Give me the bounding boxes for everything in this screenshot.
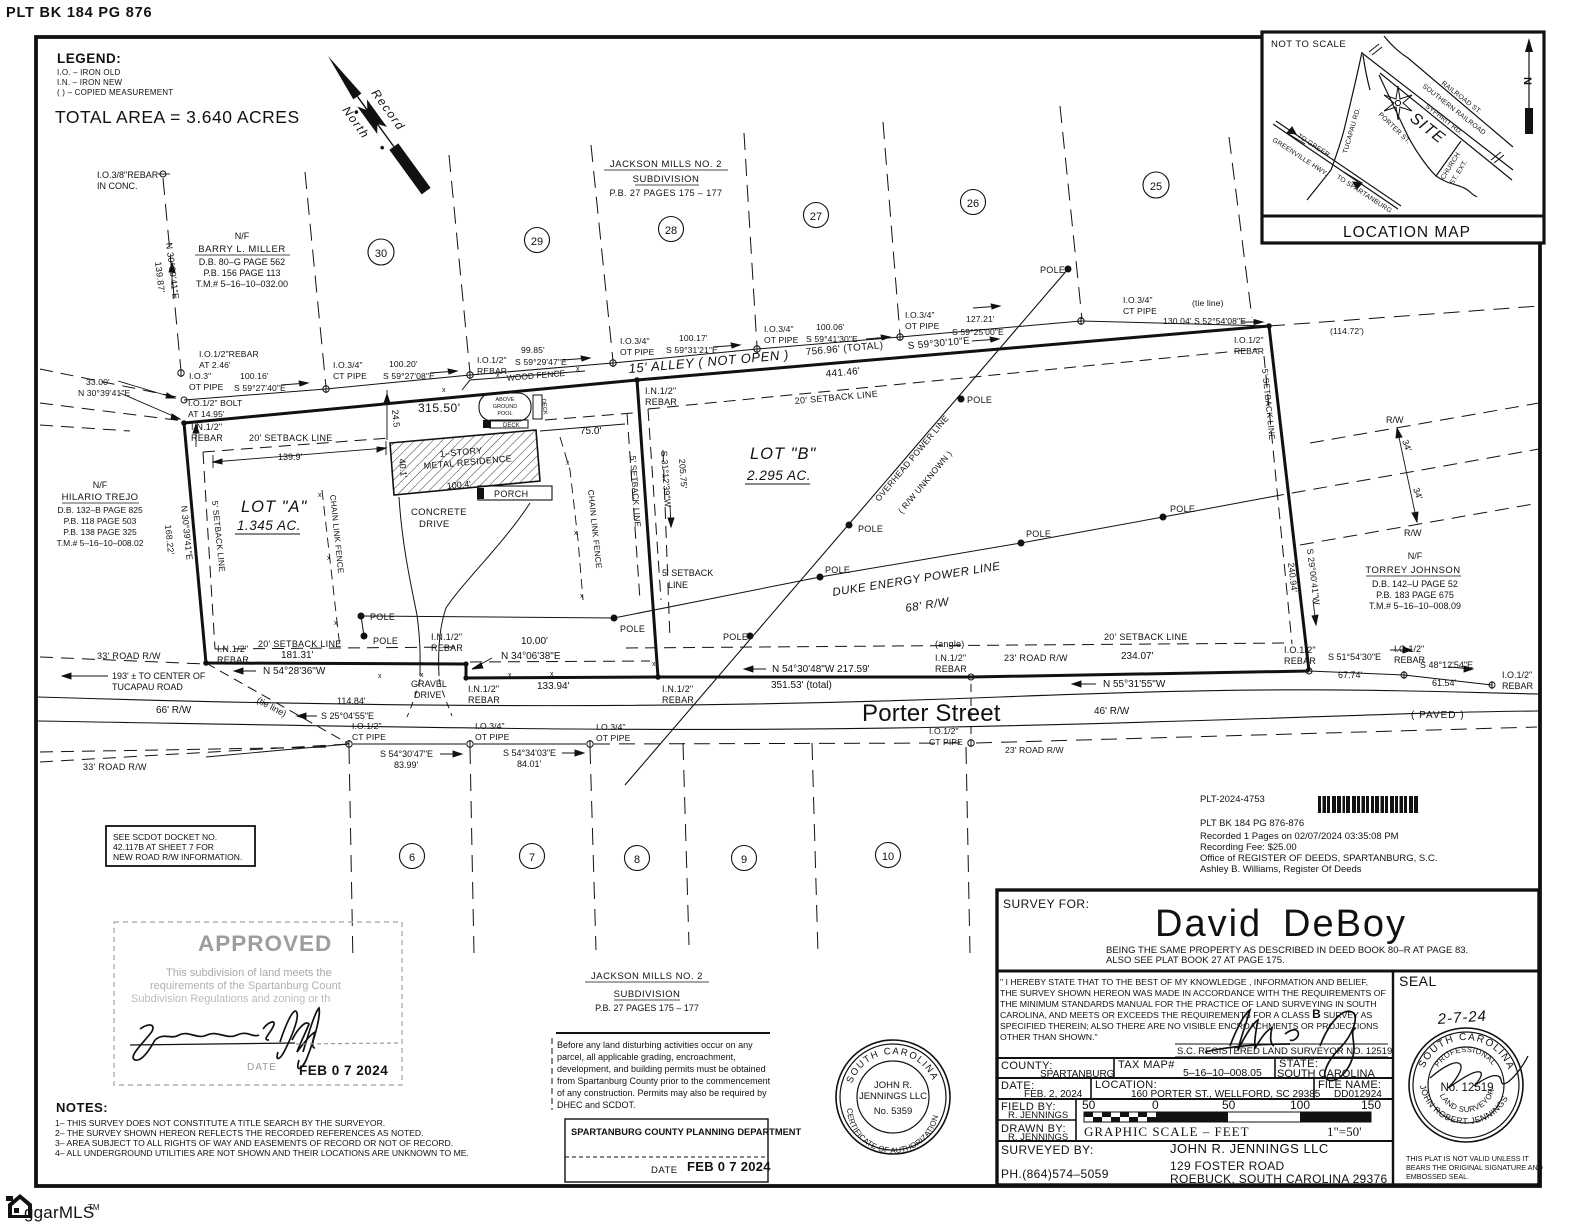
svg-text:7: 7 xyxy=(529,852,535,864)
svg-text:I.O.3/4": I.O.3/4" xyxy=(620,336,650,346)
svg-text:100.4': 100.4' xyxy=(446,479,471,491)
svg-text:TOTAL AREA = 3.640 ACRES: TOTAL AREA = 3.640 ACRES xyxy=(55,107,300,127)
svg-text:REBAR: REBAR xyxy=(477,366,507,376)
svg-text:TORREY JOHNSON: TORREY JOHNSON xyxy=(1365,565,1460,576)
svg-text:(tie line): (tie line) xyxy=(1192,298,1224,308)
svg-text:I.O.1/2": I.O.1/2" xyxy=(929,726,959,736)
svg-text:PORCH: PORCH xyxy=(494,489,529,499)
svg-text:100.06': 100.06' xyxy=(816,322,845,332)
svg-text:OT PIPE: OT PIPE xyxy=(475,732,510,742)
svg-text:REBAR: REBAR xyxy=(431,643,463,653)
svg-text:4– ALL UNDERGROUND UTILITIE: 4– ALL UNDERGROUND UTILITIES ARE NOT SHO… xyxy=(55,1148,469,1158)
svg-text:HILARIO TREJO: HILARIO TREJO xyxy=(62,492,139,503)
svg-text:S 59°27'40"E: S 59°27'40"E xyxy=(234,383,286,393)
svg-text:( ) – COPIED MEASUREMENT: ( ) – COPIED MEASUREMENT xyxy=(57,88,173,97)
svg-text:10: 10 xyxy=(882,851,894,863)
svg-text:351.53' (total): 351.53' (total) xyxy=(771,680,832,691)
svg-text:I.N.1/2": I.N.1/2" xyxy=(645,386,676,396)
svg-text:TAX MAP#: TAX MAP# xyxy=(1118,1059,1175,1071)
svg-text:S 59°27'08"E: S 59°27'08"E xyxy=(383,371,435,381)
svg-text:POLE: POLE xyxy=(1040,265,1065,275)
svg-text:I.O.3/8"REBAR: I.O.3/8"REBAR xyxy=(97,170,159,180)
svg-text:CT PIPE: CT PIPE xyxy=(1123,306,1157,316)
svg-text:(angle): (angle) xyxy=(935,639,964,649)
svg-text:P.B. 27 PAGES 175 – 177: P.B. 27 PAGES 175 – 177 xyxy=(595,1003,699,1013)
svg-text:0: 0 xyxy=(1152,1098,1159,1112)
svg-text:of any construction. Permits m: of any construction. Permits may also be… xyxy=(557,1088,767,1098)
svg-text:P.B. 138 PAGE 325: P.B. 138 PAGE 325 xyxy=(63,527,137,537)
svg-text:I.N.1/2": I.N.1/2" xyxy=(662,684,693,694)
svg-text:100.16': 100.16' xyxy=(240,371,269,381)
svg-text:SEAL: SEAL xyxy=(1399,973,1437,989)
svg-text:I.O.3": I.O.3" xyxy=(189,371,211,381)
svg-text:OT PIPE: OT PIPE xyxy=(620,347,655,357)
svg-text:1"=50': 1"=50' xyxy=(1327,1124,1361,1139)
svg-text:CONCRETE: CONCRETE xyxy=(411,507,467,518)
svg-text:PH.(864)574–5059: PH.(864)574–5059 xyxy=(1001,1167,1109,1181)
svg-text:D.B. 132–B PAGE 825: D.B. 132–B PAGE 825 xyxy=(57,505,143,515)
svg-text:100.20': 100.20' xyxy=(389,359,418,369)
svg-text:BARRY L. MILLER: BARRY L. MILLER xyxy=(198,244,285,255)
svg-text:2-7-24: 2-7-24 xyxy=(1436,1008,1487,1028)
svg-text:x: x xyxy=(496,372,500,379)
svg-text:75.0': 75.0' xyxy=(580,426,601,437)
svg-text:S 59°29'47"E: S 59°29'47"E xyxy=(515,357,567,367)
svg-text:I.O.3/4": I.O.3/4" xyxy=(333,360,363,370)
svg-text:50: 50 xyxy=(1082,1098,1096,1112)
svg-text:parcel, all applicable grading: parcel, all applicable grading, encroach… xyxy=(557,1052,736,1062)
svg-text:3– AREA SUBJECT TO ALL RI: 3– AREA SUBJECT TO ALL RIGHTS OF WAY AND… xyxy=(55,1138,453,1148)
svg-text:THE SURVEY SHOWN HEREON WA: THE SURVEY SHOWN HEREON WAS MADE IN ACCO… xyxy=(1000,988,1386,998)
svg-text:(114.72'): (114.72') xyxy=(1330,326,1364,336)
svg-text:PLT BK 184 PG 876-876: PLT BK 184 PG 876-876 xyxy=(1200,818,1304,829)
svg-text:AT 14.95': AT 14.95' xyxy=(188,409,225,419)
svg-text:DeBoy: DeBoy xyxy=(1283,903,1407,945)
svg-text:CT PIPE: CT PIPE xyxy=(352,732,386,742)
svg-text:requirements of the Spartanbur: requirements of the Spartanburg Count xyxy=(150,980,341,992)
svg-text:23' ROAD R/W: 23' ROAD R/W xyxy=(1004,653,1068,663)
svg-text:R/W: R/W xyxy=(1386,415,1404,425)
svg-text:SUBDIVISION: SUBDIVISION xyxy=(633,174,700,185)
svg-text:CAROLINA, AND MEETS OR EXC: CAROLINA, AND MEETS OR EXCEEDS THE REQUI… xyxy=(1000,1007,1372,1021)
svg-text:DATE: DATE xyxy=(247,1062,277,1073)
svg-text:OTHER THAN SHOWN.": OTHER THAN SHOWN." xyxy=(1000,1032,1098,1042)
svg-text:N/F: N/F xyxy=(1408,551,1423,561)
svg-text:P.B. 27 PAGES 175 – 177: P.B. 27 PAGES 175 – 177 xyxy=(610,188,723,198)
svg-text:x: x xyxy=(508,672,512,679)
svg-text:AT 2.46': AT 2.46' xyxy=(199,360,231,370)
svg-text:5' SETBACK: 5' SETBACK xyxy=(662,568,713,578)
svg-text:LOT "A": LOT "A" xyxy=(241,498,308,516)
svg-text:POOL: POOL xyxy=(497,411,512,417)
svg-text:JACKSON MILLS NO. 2: JACKSON MILLS NO. 2 xyxy=(591,971,703,982)
svg-text:I.N.1/2": I.N.1/2" xyxy=(935,653,966,663)
svg-text:LOT "B": LOT "B" xyxy=(750,445,817,463)
svg-text:TM: TM xyxy=(88,1203,100,1212)
svg-text:29: 29 xyxy=(531,236,543,248)
svg-text:DRIVE: DRIVE xyxy=(419,519,450,530)
svg-text:SPARTANBURG COUNTY PLANNING DE: SPARTANBURG COUNTY PLANNING DEPARTMENT xyxy=(571,1127,802,1137)
svg-text:139.9': 139.9' xyxy=(278,452,303,462)
svg-text:LINE: LINE xyxy=(668,580,688,590)
svg-text:POLE: POLE xyxy=(1170,504,1195,514)
svg-text:R. JENNINGS: R. JENNINGS xyxy=(1008,1132,1068,1143)
svg-text:POLE: POLE xyxy=(858,524,883,534)
svg-text:POLE: POLE xyxy=(825,565,850,575)
svg-text:x: x xyxy=(566,460,570,467)
svg-text:from Spartanburg County prior: from Spartanburg County prior to the com… xyxy=(557,1076,771,1086)
svg-text:OT PIPE: OT PIPE xyxy=(764,335,799,345)
svg-text:NOTES:: NOTES: xyxy=(56,1100,108,1115)
svg-text:R. JENNINGS: R. JENNINGS xyxy=(1008,1110,1068,1121)
svg-text:SURVEYED BY:: SURVEYED BY: xyxy=(1001,1143,1094,1157)
svg-text:N 30°39'41"E: N 30°39'41"E xyxy=(78,388,130,398)
svg-text:This subdivision of land meets: This subdivision of land meets the xyxy=(166,967,332,979)
svg-text:REBAR: REBAR xyxy=(1284,656,1316,666)
svg-text:205.75': 205.75' xyxy=(677,458,689,489)
svg-text:David: David xyxy=(1155,903,1262,945)
svg-text:GROUND: GROUND xyxy=(493,404,517,410)
svg-text:N/F: N/F xyxy=(93,480,108,490)
svg-text:I.O.3/4": I.O.3/4" xyxy=(596,722,626,732)
svg-text:POLE: POLE xyxy=(620,624,645,634)
svg-text:234.07': 234.07' xyxy=(1121,651,1154,662)
svg-text:I.O.1/2"REBAR: I.O.1/2"REBAR xyxy=(199,349,259,359)
svg-text:LEGEND:: LEGEND: xyxy=(57,51,121,66)
svg-text:50: 50 xyxy=(1222,1098,1236,1112)
svg-text:40.1': 40.1' xyxy=(397,458,409,478)
svg-text:LOCATION MAP: LOCATION MAP xyxy=(1343,224,1471,241)
svg-text:POLE: POLE xyxy=(723,632,748,642)
svg-text:GRAPHIC SCALE – FEET: GRAPHIC SCALE – FEET xyxy=(1084,1124,1250,1139)
svg-text:DECK: DECK xyxy=(503,423,520,429)
svg-text:67.74': 67.74' xyxy=(1338,670,1363,680)
svg-text:193' ± TO CENTER OF: 193' ± TO CENTER OF xyxy=(112,671,206,681)
svg-text:JOHN R. JENNINGS LLC: JOHN R. JENNINGS LLC xyxy=(1170,1141,1329,1156)
svg-text:10.00': 10.00' xyxy=(521,636,548,647)
svg-text:9: 9 xyxy=(741,854,747,866)
svg-text:REBAR: REBAR xyxy=(468,695,500,705)
svg-text:PLT BK 184 PG 876: PLT BK 184 PG 876 xyxy=(6,5,152,21)
svg-text:N 54°30'48"W 217.59': N 54°30'48"W 217.59' xyxy=(772,664,870,675)
svg-text:FEB 0 7 2024: FEB 0 7 2024 xyxy=(299,1063,388,1078)
svg-text:181.31': 181.31' xyxy=(281,650,314,661)
svg-text:ggarMLS: ggarMLS xyxy=(24,1203,94,1222)
svg-text:I.O.3/4": I.O.3/4" xyxy=(1123,295,1153,305)
svg-text:D.B. 80–G PAGE 562: D.B. 80–G PAGE 562 xyxy=(199,257,285,267)
svg-text:I.O.1/2": I.O.1/2" xyxy=(352,721,382,731)
svg-text:25: 25 xyxy=(1150,181,1162,193)
svg-text:DHEC and SCDOT.: DHEC and SCDOT. xyxy=(557,1100,636,1110)
svg-text:84.01': 84.01' xyxy=(517,759,542,769)
svg-text:I.O.3/4": I.O.3/4" xyxy=(764,324,794,334)
svg-text:JENNINGS LLC: JENNINGS LLC xyxy=(859,1091,927,1102)
svg-text:S 51°54'30"E: S 51°54'30"E xyxy=(1328,652,1381,662)
svg-text:Subdivision Regulations and zo: Subdivision Regulations and zoning or th xyxy=(131,993,330,1005)
svg-text:NEW ROAD R/W INFORMATION.: NEW ROAD R/W INFORMATION. xyxy=(113,852,242,862)
svg-text:OT PIPE: OT PIPE xyxy=(596,733,631,743)
svg-text:61.54': 61.54' xyxy=(1432,678,1457,688)
svg-text:66' R/W: 66' R/W xyxy=(156,705,192,716)
svg-text:NOT TO SCALE: NOT TO SCALE xyxy=(1271,39,1346,50)
svg-text:20' SETBACK LINE: 20' SETBACK LINE xyxy=(258,639,342,649)
svg-text:POLE: POLE xyxy=(1026,529,1051,539)
svg-text:SPECIFIED THEREIN; ALSO THE: SPECIFIED THEREIN; ALSO THERE ARE NO VIS… xyxy=(1000,1021,1378,1031)
svg-text:I.O. – IRON OLD: I.O. – IRON OLD xyxy=(57,68,120,77)
svg-text:T.M.# 5–16–10–008.09: T.M.# 5–16–10–008.09 xyxy=(1369,601,1461,611)
svg-text:DRIVE: DRIVE xyxy=(414,690,442,700)
svg-text:133.94': 133.94' xyxy=(537,681,570,692)
svg-text:development, and building perm: development, and building permits must b… xyxy=(557,1064,766,1074)
svg-text:JACKSON MILLS NO. 2: JACKSON MILLS NO. 2 xyxy=(610,159,722,170)
svg-text:CT PIPE: CT PIPE xyxy=(333,371,367,381)
svg-text:P.B. 183 PAGE 675: P.B. 183 PAGE 675 xyxy=(1376,590,1454,600)
svg-text:S 25°04'55"E: S 25°04'55"E xyxy=(321,711,374,721)
svg-text:20' SETBACK LINE: 20' SETBACK LINE xyxy=(1104,632,1188,642)
svg-text:27: 27 xyxy=(810,211,822,223)
svg-text:I.O.1/2": I.O.1/2" xyxy=(1502,670,1532,680)
svg-text:" I HEREBY STATE THAT TO: " I HEREBY STATE THAT TO THE BEST OF MY … xyxy=(1000,977,1368,987)
svg-text:x: x xyxy=(378,673,382,680)
svg-text:23' ROAD R/W: 23' ROAD R/W xyxy=(1005,745,1064,755)
svg-text:N 55°31'55"W: N 55°31'55"W xyxy=(1103,679,1166,690)
svg-text:OT PIPE: OT PIPE xyxy=(189,382,224,392)
svg-text:I.O.1/2": I.O.1/2" xyxy=(1234,335,1264,345)
svg-text:N 54°28'36"W: N 54°28'36"W xyxy=(263,666,326,677)
svg-text:x: x xyxy=(652,661,656,668)
svg-text:I.O.1/2": I.O.1/2" xyxy=(477,355,507,365)
svg-text:99.85': 99.85' xyxy=(521,345,545,355)
svg-text:2.295 AC.: 2.295 AC. xyxy=(746,468,811,483)
svg-text:I.O.1/2" BOLT: I.O.1/2" BOLT xyxy=(188,398,243,408)
svg-text:x: x xyxy=(580,593,584,600)
svg-text:REBAR: REBAR xyxy=(935,664,967,674)
svg-text:Recorded 1 Pages on 02/07/2024: Recorded 1 Pages on 02/07/2024 03:35:08 … xyxy=(1200,831,1399,842)
svg-text:127.21': 127.21' xyxy=(966,314,995,324)
svg-text:Porter Street: Porter Street xyxy=(862,700,1001,727)
svg-text:P.B. 118 PAGE 503: P.B. 118 PAGE 503 xyxy=(64,516,137,526)
svg-text:N: N xyxy=(1521,77,1533,85)
svg-text:129 FOSTER ROAD: 129 FOSTER ROAD xyxy=(1170,1159,1285,1173)
svg-text:83.99': 83.99' xyxy=(394,760,419,770)
svg-text:APPROVED: APPROVED xyxy=(198,931,332,956)
svg-text:BEARS THE ORIGINAL SIGNATUR: BEARS THE ORIGINAL SIGNATURE AND xyxy=(1406,1163,1543,1172)
svg-text:POLE: POLE xyxy=(370,612,395,622)
svg-text:130.04' S 52°54'08"E: 130.04' S 52°54'08"E xyxy=(1163,316,1246,326)
svg-text:I.O.3/4": I.O.3/4" xyxy=(475,721,505,731)
svg-text:Recording Fee: $25.00: Recording Fee: $25.00 xyxy=(1200,842,1297,853)
svg-text:46' R/W: 46' R/W xyxy=(1094,706,1130,717)
svg-text:I.N. – IRON NEW: I.N. – IRON NEW xyxy=(57,78,122,87)
svg-text:x: x xyxy=(576,366,580,373)
svg-text:No. 5359: No. 5359 xyxy=(874,1106,913,1117)
svg-text:P.B. 156 PAGE 113: P.B. 156 PAGE 113 xyxy=(203,268,280,278)
svg-text:x: x xyxy=(550,671,554,678)
svg-text:315.50': 315.50' xyxy=(418,401,461,415)
svg-text:ROEBUCK, SOUTH CAROLINA 293: ROEBUCK, SOUTH CAROLINA 29376 xyxy=(1170,1172,1387,1186)
svg-text:CT PIPE: CT PIPE xyxy=(929,737,963,747)
svg-text:S 54°30'47"E: S 54°30'47"E xyxy=(380,749,433,759)
svg-text:REBAR: REBAR xyxy=(217,655,249,665)
svg-text:OT PIPE: OT PIPE xyxy=(905,321,940,331)
svg-text:ALSO SEE PLAT BOOK 27 AT: ALSO SEE PLAT BOOK 27 AT PAGE 175. xyxy=(1106,955,1285,966)
svg-text:8: 8 xyxy=(634,854,640,866)
svg-text:x: x xyxy=(574,530,578,537)
svg-text:24.5: 24.5 xyxy=(390,409,402,427)
svg-text:POLE: POLE xyxy=(967,395,992,405)
svg-text:R/W: R/W xyxy=(1404,528,1422,538)
svg-text:S 54°34'03"E: S 54°34'03"E xyxy=(503,748,556,758)
svg-text:100.17': 100.17' xyxy=(679,333,708,343)
svg-text:SURVEY FOR:: SURVEY FOR: xyxy=(1003,897,1089,911)
svg-text:PLT-2024-4753: PLT-2024-4753 xyxy=(1200,794,1265,805)
svg-text:6: 6 xyxy=(409,852,415,864)
svg-text:SEE SCDOT DOCKET NO.: SEE SCDOT DOCKET NO. xyxy=(113,832,217,842)
svg-text:33' ROAD R/W: 33' ROAD R/W xyxy=(83,762,147,772)
svg-text:I.O.1/2": I.O.1/2" xyxy=(1394,644,1424,654)
svg-text:1– THIS SURVEY DOES NOT C: 1– THIS SURVEY DOES NOT CONSTITUTE A TIT… xyxy=(55,1118,385,1128)
svg-text:SUBDIVISION: SUBDIVISION xyxy=(614,989,681,1000)
svg-text:26: 26 xyxy=(967,198,979,210)
svg-text:x: x xyxy=(442,387,446,394)
svg-text:EMBOSSED SEAL.: EMBOSSED SEAL. xyxy=(1406,1172,1469,1181)
svg-text:28: 28 xyxy=(665,225,677,237)
svg-text:JOHN R.: JOHN R. xyxy=(874,1080,912,1091)
svg-text:N 34°06'38"E: N 34°06'38"E xyxy=(501,651,561,662)
svg-text:N/F: N/F xyxy=(235,231,250,241)
svg-text:42.117B AT SHEET 7 FOR: 42.117B AT SHEET 7 FOR xyxy=(113,842,214,852)
svg-text:100: 100 xyxy=(1290,1098,1310,1112)
svg-text:D.B. 142–U PAGE 52: D.B. 142–U PAGE 52 xyxy=(1372,579,1458,589)
svg-text:x: x xyxy=(334,620,338,627)
svg-text:( PAVED ): ( PAVED ) xyxy=(1411,710,1465,721)
svg-text:I.N.1/2": I.N.1/2" xyxy=(431,632,462,642)
svg-text:I.O.1/2": I.O.1/2" xyxy=(1284,645,1316,655)
svg-text:REBAR: REBAR xyxy=(645,397,677,407)
svg-text:GRAVEL: GRAVEL xyxy=(411,679,447,689)
svg-text:Office of REGISTER OF DEEDS, S: Office of REGISTER OF DEEDS, SPARTANBURG… xyxy=(1200,853,1437,864)
svg-text:114.84': 114.84' xyxy=(337,696,366,706)
svg-text:T.M.# 5–16–10–008.02: T.M.# 5–16–10–008.02 xyxy=(57,538,144,548)
svg-text:REBAR: REBAR xyxy=(1502,681,1534,691)
svg-text:33.00': 33.00' xyxy=(86,377,110,387)
svg-text:DATE: DATE xyxy=(651,1165,678,1176)
svg-text:x: x xyxy=(318,492,322,499)
svg-text:Before any land disturbing act: Before any land disturbing activities oc… xyxy=(557,1040,753,1050)
svg-text:I.O.3/4": I.O.3/4" xyxy=(905,310,935,320)
svg-text:TUCAPAU ROAD: TUCAPAU ROAD xyxy=(112,682,183,692)
svg-text:I.N.1/2": I.N.1/2" xyxy=(468,684,499,694)
svg-text:1.345 AC.: 1.345 AC. xyxy=(237,518,301,533)
svg-text:150: 150 xyxy=(1361,1098,1381,1112)
svg-text:x: x xyxy=(420,672,424,679)
svg-text:REBAR: REBAR xyxy=(662,695,694,705)
svg-text:POLE: POLE xyxy=(373,636,398,646)
svg-text:IN CONC.: IN CONC. xyxy=(97,181,138,191)
svg-text:FEB 0 7 2024: FEB 0 7 2024 xyxy=(687,1159,771,1174)
svg-text:ABOVE: ABOVE xyxy=(496,397,515,403)
svg-text:2– THE SURVEY SHOWN HEREON: 2– THE SURVEY SHOWN HEREON REFLECTS THE … xyxy=(55,1128,424,1138)
svg-text:THIS PLAT IS NOT VALID UN: THIS PLAT IS NOT VALID UNLESS IT xyxy=(1406,1154,1529,1163)
svg-text:x: x xyxy=(327,555,331,562)
svg-text:T.M.# 5–16–10–032.00: T.M.# 5–16–10–032.00 xyxy=(196,279,288,289)
svg-text:20' SETBACK LINE: 20' SETBACK LINE xyxy=(249,433,333,443)
svg-text:Ashley B. Williams, Register O: Ashley B. Williams, Register Of Deeds xyxy=(1200,864,1362,875)
svg-text:30: 30 xyxy=(375,248,387,260)
